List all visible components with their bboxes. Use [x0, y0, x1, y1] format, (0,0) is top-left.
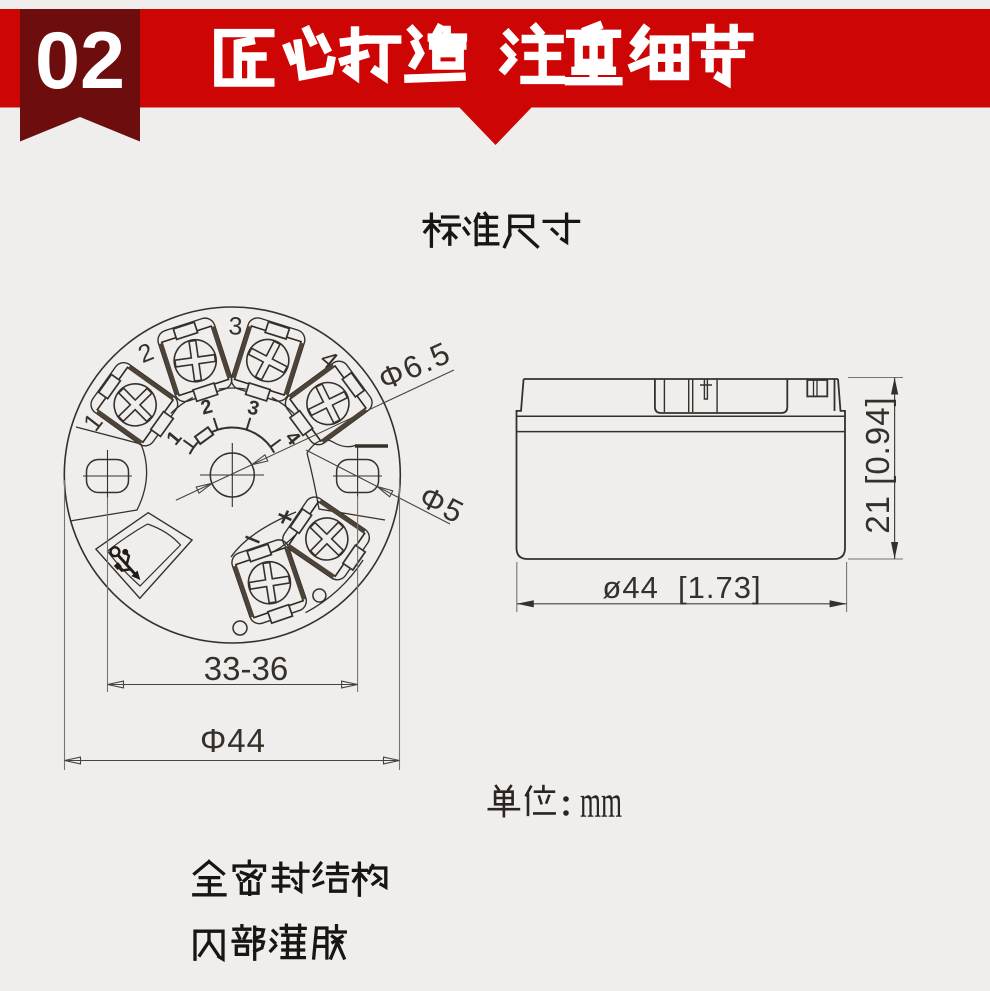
svg-text:1: 1 — [162, 427, 186, 450]
svg-text:mm: mm — [580, 776, 622, 827]
svg-text:3: 3 — [245, 396, 261, 420]
svg-text:2: 2 — [134, 338, 157, 369]
svg-text:1: 1 — [78, 408, 109, 436]
svg-text:33-36: 33-36 — [204, 650, 288, 687]
svg-text:02: 02 — [35, 16, 125, 106]
svg-text:ø44 [1.73]: ø44 [1.73] — [602, 570, 761, 605]
svg-text:Φ5: Φ5 — [414, 479, 471, 531]
svg-text:Φ44: Φ44 — [200, 722, 266, 759]
svg-text:3: 3 — [228, 312, 243, 340]
svg-text:21 [0.94]: 21 [0.94] — [859, 396, 896, 533]
